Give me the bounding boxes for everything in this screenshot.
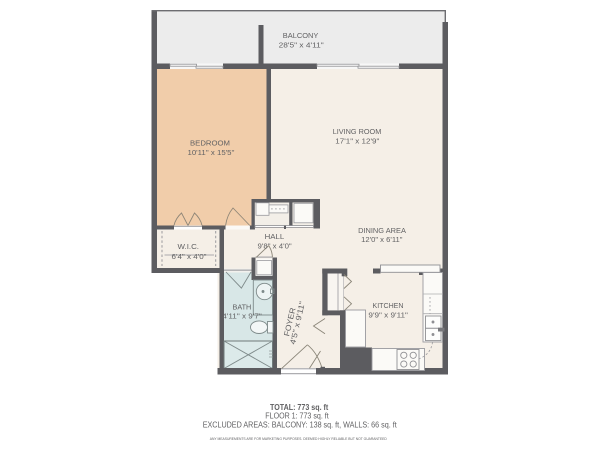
svg-text:KITCHEN: KITCHEN — [373, 301, 404, 310]
svg-text:BALCONY: BALCONY — [283, 31, 319, 40]
svg-text:17'1" x 12'9": 17'1" x 12'9" — [335, 137, 379, 146]
svg-text:BATH: BATH — [233, 303, 252, 312]
svg-text:LIVING ROOM: LIVING ROOM — [333, 127, 382, 136]
svg-text:BEDROOM: BEDROOM — [190, 139, 230, 148]
svg-text:HALL: HALL — [265, 232, 285, 241]
svg-text:W.I.C.: W.I.C. — [178, 242, 200, 251]
svg-text:6'4" x 4'0": 6'4" x 4'0" — [172, 252, 207, 261]
svg-text:DINING AREA: DINING AREA — [358, 226, 407, 235]
svg-text:9'9" x 9'11": 9'9" x 9'11" — [368, 310, 408, 319]
svg-text:12'0" x 6'11": 12'0" x 6'11" — [361, 235, 403, 244]
svg-text:28'5" x 4'11": 28'5" x 4'11" — [279, 40, 324, 49]
svg-text:10'11'' x 15'5'': 10'11'' x 15'5'' — [188, 148, 236, 157]
svg-text:EXCLUDED AREAS: BALCONY: 138 s: EXCLUDED AREAS: BALCONY: 138 sq. ft, WAL… — [203, 420, 397, 430]
svg-text:4'11" x 9'7": 4'11" x 9'7" — [222, 312, 262, 321]
svg-text:9'8" x 4'0": 9'8" x 4'0" — [258, 242, 293, 251]
svg-text:ANY MEASUREMENTS ARE FOR MARKE: ANY MEASUREMENTS ARE FOR MARKETING PURPO… — [210, 436, 387, 441]
